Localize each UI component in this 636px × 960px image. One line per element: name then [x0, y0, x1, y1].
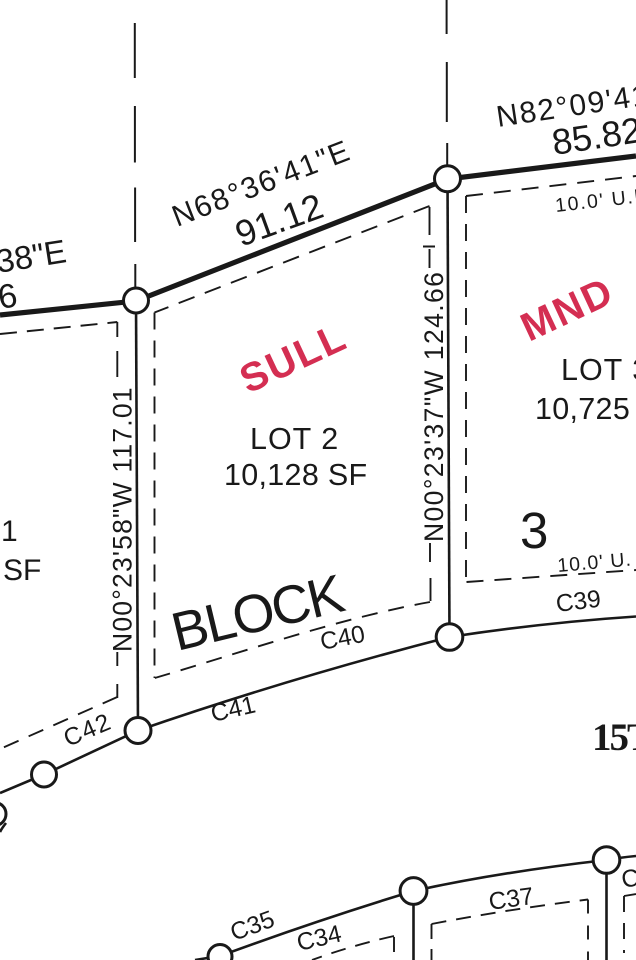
- svg-text:3: 3: [520, 502, 548, 559]
- svg-text:SF: SF: [3, 554, 41, 587]
- svg-text:LOT 2: LOT 2: [250, 422, 339, 456]
- svg-text:10,128 SF: 10,128 SF: [224, 458, 367, 492]
- svg-text:10,725: 10,725: [535, 392, 630, 426]
- svg-text:N00°23'37"W 124.66: N00°23'37"W 124.66: [419, 271, 449, 542]
- svg-text:1: 1: [1, 515, 18, 548]
- svg-text:LOT 3: LOT 3: [561, 353, 636, 387]
- svg-text:C39: C39: [554, 586, 602, 618]
- svg-text:15TH ST.: 15TH ST.: [592, 716, 636, 759]
- svg-text:N00°23'58"W 117.01: N00°23'58"W 117.01: [108, 386, 138, 652]
